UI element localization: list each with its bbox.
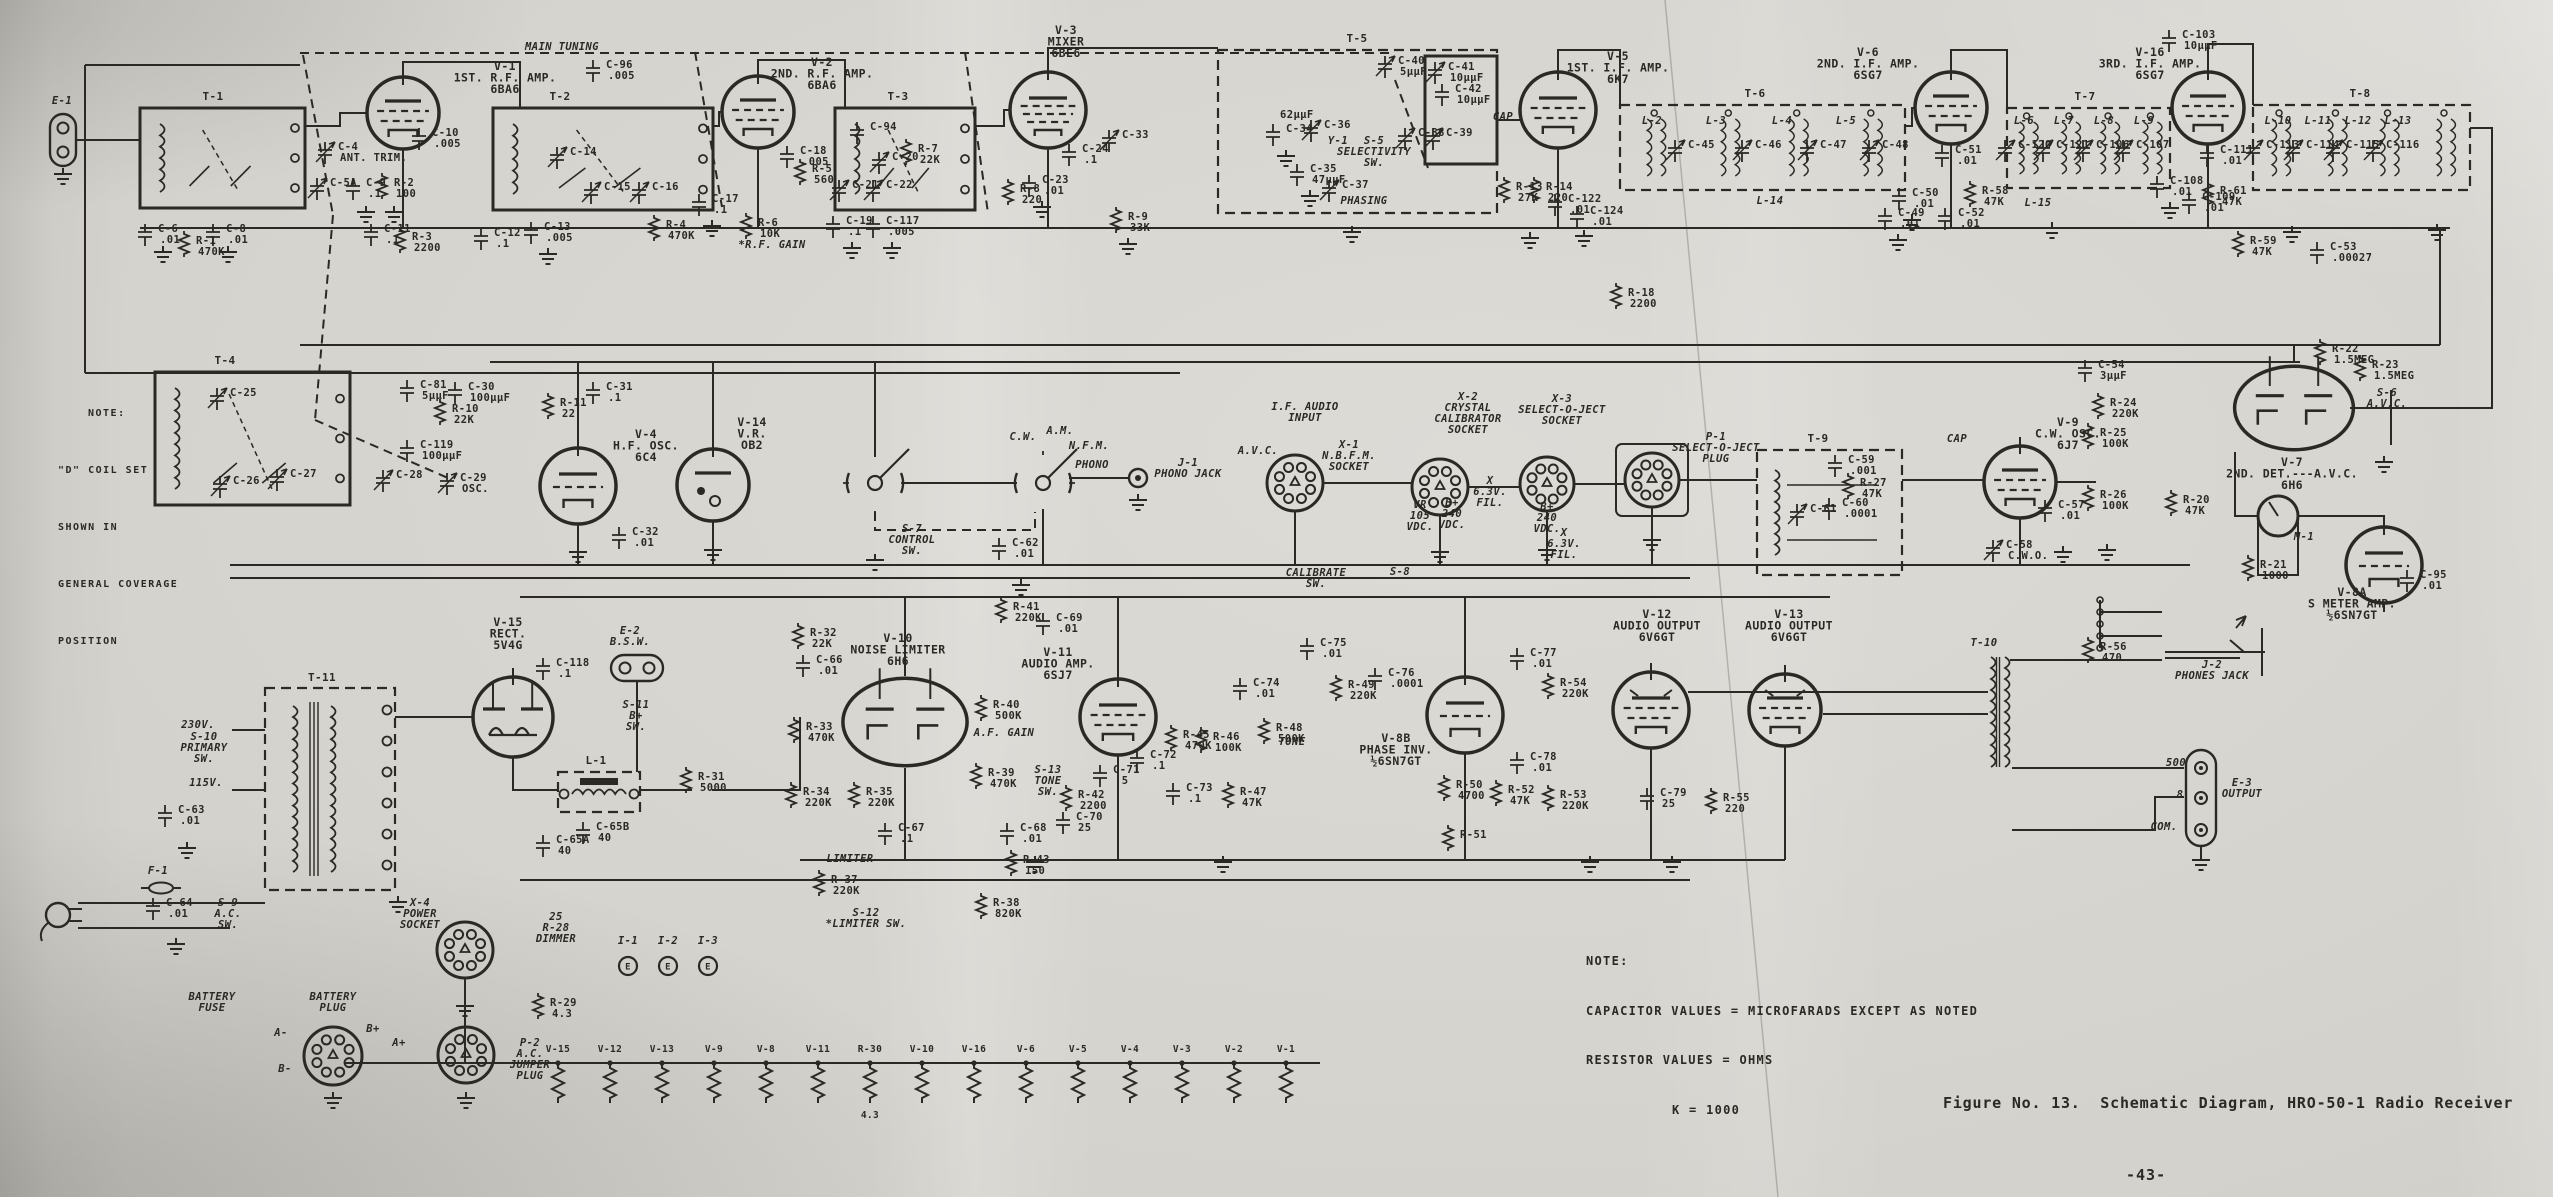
svg-text:T-3: T-3: [887, 90, 908, 103]
svg-text:A.V.C.: A.V.C.: [1237, 445, 1278, 457]
svg-text:V-10: V-10: [910, 1044, 934, 1055]
svg-text:.01: .01: [228, 234, 248, 246]
svg-text:.1: .1: [714, 204, 727, 216]
svg-text:PHASING: PHASING: [1340, 195, 1387, 207]
svg-text:.01: .01: [1058, 623, 1078, 635]
svg-text:100K: 100K: [1215, 742, 1242, 754]
tube-V-11: V-11AUDIO AMP.6SJ7: [1021, 645, 1156, 764]
ground-symbols: [54, 150, 2446, 1108]
svg-text:220: 220: [1022, 194, 1042, 206]
svg-text:47K: 47K: [1984, 196, 2004, 208]
socket-BATTERY-PLUG: [304, 1027, 362, 1085]
svg-text:L-1: L-1: [585, 754, 606, 767]
part-C71: C-71.5: [1093, 764, 1140, 787]
part-C114: C-114: [2284, 139, 2340, 162]
part-C72: C-72.1: [1130, 749, 1177, 772]
svg-text:.1: .1: [1152, 760, 1165, 772]
svg-text:A.V.C.: A.V.C.: [2366, 398, 2407, 410]
svg-text:I-2: I-2: [658, 935, 678, 947]
svg-text:25: 25: [1662, 798, 1675, 810]
part-R35: R-35220K: [849, 782, 895, 809]
svg-text:SOCKET: SOCKET: [1329, 461, 1370, 473]
svg-text:A.M.: A.M.: [1046, 425, 1074, 437]
svg-text:FIL.: FIL.: [1477, 497, 1504, 509]
ac-plug-acplug: [41, 903, 82, 941]
svg-text:TONE: TONE: [1279, 736, 1306, 748]
svg-text:S-8: S-8: [1390, 566, 1410, 578]
svg-text:47K: 47K: [1510, 795, 1530, 807]
svg-text:C-120: C-120: [2018, 139, 2052, 151]
svg-text:L-5: L-5: [1836, 115, 1856, 127]
svg-text:6V6GT: 6V6GT: [1771, 630, 1808, 644]
part-C79: C-7925: [1640, 787, 1687, 810]
part-R41: R-41220K: [996, 597, 1042, 624]
svg-text:10μμF: 10μμF: [1457, 94, 1491, 106]
part-C11: C-11.1: [364, 223, 411, 246]
part-R56: R-56470: [2083, 637, 2127, 664]
svg-text:6V6GT: 6V6GT: [1639, 630, 1676, 644]
svg-text:SW.: SW.: [1364, 157, 1384, 169]
svg-text:V-6: V-6: [1017, 1044, 1035, 1055]
part-R40: R-40500K: [976, 695, 1022, 722]
part-R18: R-182200: [1611, 283, 1657, 310]
part-C53: C-53.00027: [2310, 241, 2372, 264]
svg-text:470K: 470K: [990, 778, 1017, 790]
svg-text:C-45: C-45: [1688, 139, 1715, 151]
svg-text:I-1: I-1: [618, 935, 638, 947]
t-10-coilv: [1991, 657, 2010, 767]
part-C34: C-34: [1266, 123, 1313, 146]
svg-text:C-48: C-48: [1882, 139, 1909, 151]
svg-text:C-25: C-25: [230, 387, 257, 399]
svg-text:6H6: 6H6: [2281, 478, 2303, 492]
part-R59: R-5947K: [2233, 231, 2277, 258]
part-C15: C-15: [582, 181, 631, 204]
svg-text:C-94: C-94: [870, 121, 897, 133]
part-C66: C-66.01: [796, 654, 843, 677]
part-C29: C-29OSC.: [438, 472, 489, 495]
tube-V-2: V-22ND. R.F. AMP.6BA6: [722, 55, 873, 157]
svg-text:L-11: L-11: [2305, 115, 2332, 127]
svg-text:.005: .005: [802, 156, 829, 168]
svg-text:22: 22: [562, 408, 575, 420]
svg-text:230V.: 230V.: [180, 719, 215, 731]
svg-text:FIL.: FIL.: [1551, 549, 1578, 561]
svg-text:.01: .01: [1014, 548, 1034, 560]
svg-text:6BE6: 6BE6: [1051, 46, 1080, 60]
svg-text:6H6: 6H6: [887, 654, 909, 668]
svg-text:6J7: 6J7: [2057, 438, 2079, 452]
svg-text:6BA6: 6BA6: [807, 78, 836, 92]
svg-text:2200: 2200: [1630, 298, 1657, 310]
svg-text:OB2: OB2: [741, 438, 763, 452]
svg-text:.01: .01: [634, 537, 654, 549]
part-R20: R-2047K: [2166, 490, 2210, 517]
part-C25: C-25: [208, 387, 257, 410]
part-C32: C-32.01: [612, 526, 659, 549]
tube-V-8B: V-8BPHASE INV.½6SN7GT: [1359, 668, 1503, 768]
part-C17: C-17.1: [692, 193, 739, 216]
svg-text:SW.: SW.: [626, 721, 646, 733]
part-R39: R-39470K: [971, 763, 1017, 790]
part-C75: C-75.01: [1300, 637, 1347, 660]
part-R9: R-933K: [1111, 207, 1150, 234]
part-C12: C-12.1: [474, 227, 521, 250]
part-C42: C-4210μμF: [1435, 83, 1491, 106]
svg-text:470K: 470K: [198, 246, 225, 258]
tube-V-4: V-4H.F. OSC.6C4: [540, 427, 679, 533]
svg-text:220K: 220K: [1562, 800, 1589, 812]
transformer-T-1: T-1: [140, 90, 305, 208]
part-C70: C-7025: [1056, 811, 1103, 834]
svg-text:100K: 100K: [2102, 438, 2129, 450]
part-C6: C-6.01: [138, 223, 180, 246]
svg-text:470K: 470K: [668, 230, 695, 242]
schematic-canvas: T-1T-2T-3T-4T-5T-6T-7T-8T-9T-11L-1V-11ST…: [0, 0, 2553, 1197]
tube-V-13: V-13AUDIO OUTPUT6V6GT: [1745, 607, 1833, 755]
tube-V-7: V-72ND. DET.---A.V.C.6H6: [2226, 356, 2358, 492]
svg-text:C-107: C-107: [2136, 139, 2170, 151]
svg-text:T-11: T-11: [308, 671, 336, 684]
svg-text:L-7: L-7: [2054, 115, 2074, 127]
part-R10: R-1022K: [435, 399, 479, 426]
svg-text:47K: 47K: [2185, 505, 2205, 517]
tube-V-16: V-163RD. I.F. AMP.6SG7: [2099, 45, 2244, 153]
svg-text:4700: 4700: [1458, 790, 1485, 802]
svg-text:VDC.: VDC.: [1407, 521, 1434, 533]
svg-text:PLUG: PLUG: [1703, 453, 1730, 465]
part-C62: C-62.01: [992, 537, 1039, 560]
svg-text:T-5: T-5: [1346, 32, 1367, 45]
part-C103: C-10310μμF: [2162, 29, 2218, 52]
svg-text:5V4G: 5V4G: [493, 638, 522, 652]
part-C95: C-95.01: [2400, 569, 2447, 592]
socket-X-4: [437, 922, 493, 978]
part-C64: C-64.01: [146, 897, 193, 920]
svg-text:.0001: .0001: [1390, 678, 1424, 690]
svg-text:C-15: C-15: [604, 181, 631, 193]
svg-text:V-15: V-15: [546, 1044, 570, 1055]
part-C49: C-49.01: [1878, 207, 1925, 230]
coil-note-line: POSITION: [58, 632, 178, 651]
svg-text:.01: .01: [168, 908, 188, 920]
svg-text:V-1: V-1: [1277, 1044, 1295, 1055]
part-C63: C-63.01: [158, 804, 205, 827]
svg-text:N.F.M.: N.F.M.: [1068, 440, 1109, 452]
svg-text:100K: 100K: [2102, 500, 2129, 512]
m-1-meter: [2258, 496, 2298, 536]
part-R53: R-53220K: [1543, 785, 1589, 812]
svg-text:L-9: L-9: [2134, 115, 2154, 127]
svg-text:6SJ7: 6SJ7: [1043, 668, 1072, 682]
coil-note-line: "D" COIL SET: [58, 461, 178, 480]
tube-V-14: V-14V.R.OB2: [677, 415, 767, 530]
part-C61: C-61: [1788, 503, 1837, 526]
svg-text:47K: 47K: [2252, 246, 2272, 258]
svg-text:220: 220: [1725, 803, 1745, 815]
svg-text:.005: .005: [546, 232, 573, 244]
part-R31: R-315000: [681, 767, 727, 794]
svg-text:L-8: L-8: [2094, 115, 2114, 127]
svg-text:CAP: CAP: [1947, 433, 1967, 445]
svg-text:5μμF: 5μμF: [422, 390, 449, 402]
svg-text:.005: .005: [434, 138, 461, 150]
svg-text:10μμF: 10μμF: [2184, 40, 2218, 52]
svg-text:CAP: CAP: [1493, 111, 1513, 123]
part-C20: C-20: [870, 151, 919, 174]
part-C58: C-58C.W.O.: [1984, 539, 2048, 562]
svg-text:T-7: T-7: [2074, 90, 2095, 103]
heater-chain: V-15V-12V-13V-9V-8V-11R-304.3V-10V-16V-6…: [546, 1044, 1295, 1121]
svg-text:M-1: M-1: [2293, 531, 2314, 543]
values-note: NOTE: CAPACITOR VALUES = MICROFARADS EXC…: [1586, 920, 1978, 1151]
svg-text:VDC.: VDC.: [1439, 519, 1466, 531]
svg-text:T-6: T-6: [1744, 87, 1765, 100]
part-C24: C-24.1: [1062, 143, 1109, 166]
svg-text:PLUG: PLUG: [517, 1070, 544, 1082]
part-C41: C-4110μμF: [1426, 61, 1484, 84]
mode-sw-rot: [1011, 449, 1077, 515]
svg-text:V-4: V-4: [1121, 1044, 1139, 1055]
coil-note: NOTE: "D" COIL SET SHOWN IN GENERAL COVE…: [58, 366, 178, 689]
part-R29: R-294.3: [533, 993, 577, 1020]
part-C31: C-31.1: [586, 381, 633, 404]
svg-text:40: 40: [558, 845, 571, 857]
part-C116: C-116: [2364, 139, 2420, 162]
svg-text:.00027: .00027: [2332, 252, 2372, 264]
part-C74: C-74.01: [1233, 677, 1280, 700]
svg-text:C-116: C-116: [2386, 139, 2420, 151]
tube-V-12: V-12AUDIO OUTPUT6V6GT: [1613, 607, 1701, 757]
svg-text:C-46: C-46: [1755, 139, 1782, 151]
svg-text:*R.F. GAIN: *R.F. GAIN: [738, 239, 805, 251]
svg-text:OSC.: OSC.: [462, 483, 489, 495]
part-C108: C-108.01: [2150, 175, 2204, 198]
part-C13: C-13.005: [524, 221, 573, 244]
svg-text:.005: .005: [608, 70, 635, 82]
svg-text:F-1: F-1: [148, 865, 168, 877]
svg-text:C-20: C-20: [892, 151, 919, 163]
svg-text:4.3: 4.3: [861, 1110, 879, 1121]
svg-text:V-16: V-16: [962, 1044, 986, 1055]
transformer-T-11: T-11: [265, 671, 395, 890]
svg-text:C-22: C-22: [886, 179, 913, 191]
svg-text:.01: .01: [1957, 155, 1977, 167]
svg-text:.005: .005: [888, 226, 915, 238]
part-R24: R-24220K: [2093, 393, 2139, 420]
svg-text:220K: 220K: [868, 797, 895, 809]
svg-text:220K: 220K: [1015, 612, 1042, 624]
f-1-fuse: [141, 883, 181, 894]
svg-text:V-8: V-8: [757, 1044, 775, 1055]
part-C118: C-118.1: [536, 657, 590, 680]
svg-text:LIMITER: LIMITER: [826, 853, 873, 865]
svg-text:OUTPUT: OUTPUT: [2222, 788, 2263, 800]
svg-text:.01: .01: [1255, 688, 1275, 700]
svg-text:FUSE: FUSE: [199, 1002, 226, 1014]
part-C10: C-10.005: [412, 127, 461, 150]
svg-text:3μμF: 3μμF: [2100, 370, 2127, 382]
part-R50: R-504700: [1439, 775, 1485, 802]
svg-text:SW.: SW.: [194, 753, 214, 765]
part-C40: C-405μμF: [1376, 55, 1427, 78]
svg-text:62μμF: 62μμF: [1280, 109, 1314, 121]
part-R23: R-231.5MEG: [2355, 355, 2414, 382]
svg-text:1000: 1000: [2262, 570, 2289, 582]
svg-text:PHONO: PHONO: [1075, 459, 1109, 471]
part-C73: C-73.1: [1166, 782, 1213, 805]
part-C65A: C-65A40: [536, 834, 590, 857]
svg-text:V-12: V-12: [598, 1044, 622, 1055]
part-R43: R-43150: [1006, 850, 1050, 877]
svg-text:SW.: SW.: [1038, 786, 1058, 798]
svg-text:.1: .1: [496, 238, 509, 250]
part-R6: R-610K: [741, 213, 780, 240]
svg-text:E: E: [625, 963, 631, 973]
svg-text:½6SN7GT: ½6SN7GT: [2326, 608, 2377, 622]
svg-text:B-: B-: [277, 1063, 291, 1075]
svg-text:100μμF: 100μμF: [422, 450, 462, 462]
part-C18: C-18.005: [780, 145, 829, 168]
svg-text:C.W.: C.W.: [1010, 431, 1037, 443]
svg-text:220K: 220K: [805, 797, 832, 809]
svg-text:T-9: T-9: [1807, 432, 1828, 445]
svg-text:500K: 500K: [995, 710, 1022, 722]
svg-text:PHONO JACK: PHONO JACK: [1154, 468, 1222, 480]
part-R1: R-1470K: [179, 231, 225, 258]
svg-text:C-26: C-26: [233, 475, 260, 487]
part-C54: C-543μμF: [2078, 359, 2127, 382]
values-note-line: NOTE:: [1586, 953, 1978, 970]
svg-text:T-8: T-8: [2349, 87, 2370, 100]
svg-text:6K7: 6K7: [1607, 72, 1629, 86]
svg-text:5000: 5000: [700, 782, 727, 794]
socket-X-1: [1267, 455, 1323, 511]
svg-text:.01: .01: [1044, 185, 1064, 197]
part-C14: C-14: [548, 146, 597, 169]
svg-text:L-12: L-12: [2345, 115, 2372, 127]
svg-text:25: 25: [1078, 822, 1091, 834]
svg-text:.01: .01: [1592, 216, 1612, 228]
svg-text:.01: .01: [1532, 762, 1552, 774]
svg-text:E: E: [705, 963, 711, 973]
part-R22: R-221.5MEG: [2315, 339, 2374, 366]
part-R49: R-49220K: [1331, 675, 1377, 702]
svg-text:V-3: V-3: [1173, 1044, 1191, 1055]
svg-text:47K: 47K: [2222, 196, 2242, 208]
part-R37: R-37220K: [814, 870, 860, 897]
svg-text:.1: .1: [558, 668, 571, 680]
svg-text:C-47: C-47: [1820, 139, 1847, 151]
svg-text:L-6: L-6: [2014, 115, 2034, 127]
svg-text:C-14: C-14: [570, 146, 597, 158]
svg-text:L-2: L-2: [1642, 115, 1662, 127]
svg-text:*LIMITER SW.: *LIMITER SW.: [826, 918, 907, 930]
part-R61: R-6147K: [2203, 181, 2247, 208]
svg-text:22K: 22K: [920, 154, 940, 166]
svg-text:6SG7: 6SG7: [1853, 68, 1882, 82]
svg-text:47K: 47K: [1242, 797, 1262, 809]
svg-text:150: 150: [1025, 865, 1045, 877]
svg-text:.01: .01: [1022, 833, 1042, 845]
svg-text:6SG7: 6SG7: [2135, 68, 2164, 82]
svg-text:C-39: C-39: [1446, 127, 1473, 139]
svg-text:22K: 22K: [454, 414, 474, 426]
part-C117: C-117.005: [866, 215, 920, 238]
part-R34: R-34220K: [786, 782, 832, 809]
part-R3: R-32200: [395, 227, 441, 254]
svg-text:.01: .01: [2060, 510, 2080, 522]
tube-V-15: V-15RECT.5V4G: [473, 615, 553, 766]
svg-text:L-3: L-3: [1706, 115, 1726, 127]
svg-text:DIMMER: DIMMER: [535, 933, 576, 945]
svg-text:½6SN7GT: ½6SN7GT: [1370, 754, 1421, 768]
svg-text:C-36: C-36: [1324, 119, 1351, 131]
coil-note-line: GENERAL COVERAGE: [58, 575, 178, 594]
part-C57: C-57.01: [2038, 499, 2085, 522]
part-C76: C-76.0001: [1368, 667, 1424, 690]
svg-text:.01: .01: [2422, 580, 2442, 592]
svg-text:1.5MEG: 1.5MEG: [2374, 370, 2414, 382]
svg-text:T-4: T-4: [214, 354, 235, 367]
svg-text:COM.: COM.: [2151, 821, 2178, 833]
part-C28: C-28: [374, 469, 423, 492]
svg-text:22K: 22K: [812, 638, 832, 650]
svg-text:A.F. GAIN: A.F. GAIN: [973, 727, 1035, 739]
svg-text:SOCKET: SOCKET: [400, 919, 441, 931]
svg-text:Y-1: Y-1: [1328, 135, 1348, 147]
schematic-page: T-1T-2T-3T-4T-5T-6T-7T-8T-9T-11L-1V-11ST…: [0, 0, 2553, 1197]
e-3-term3v: [2186, 750, 2216, 846]
svg-text:.01: .01: [818, 665, 838, 677]
part-C45: C-45: [1666, 139, 1715, 162]
svg-text:SW.: SW.: [218, 919, 238, 931]
svg-text:V-2: V-2: [1225, 1044, 1243, 1055]
part-R42: R-422200: [1061, 785, 1107, 812]
svg-text:B.S.W.: B.S.W.: [609, 636, 650, 648]
svg-text:.1: .1: [1084, 154, 1097, 166]
svg-text:I-3: I-3: [698, 935, 718, 947]
svg-text:T-2: T-2: [549, 90, 570, 103]
svg-text:V-13: V-13: [650, 1044, 674, 1055]
part-R27: R-2747K: [1843, 473, 1887, 500]
values-note-line: RESISTOR VALUES = OHMS: [1586, 1052, 1978, 1069]
part-R47: R-4747K: [1223, 782, 1267, 809]
part-R14: R-14220: [1529, 177, 1573, 204]
coil-note-line: NOTE:: [58, 404, 178, 423]
svg-text:100: 100: [396, 188, 416, 200]
part-R25: R-25100K: [2083, 423, 2129, 450]
i-1-lamp: E: [619, 957, 637, 975]
tube-V-6: V-62ND. I.F. AMP.6SG7: [1817, 45, 1987, 153]
svg-text:.01: .01: [1532, 658, 1552, 670]
part-R26: R-26100K: [2083, 485, 2129, 512]
svg-text:6BA6: 6BA6: [490, 82, 519, 96]
svg-text:T-10: T-10: [1971, 637, 1998, 649]
svg-text:4.3: 4.3: [552, 1008, 572, 1020]
svg-text:R-51: R-51: [1460, 829, 1487, 841]
part-C121: C-121: [2034, 139, 2090, 162]
part-C96: C-96.005: [586, 59, 635, 82]
part-C5A: C-5A: [308, 177, 357, 200]
svg-text:MAIN TUNING: MAIN TUNING: [524, 41, 599, 53]
figure-caption: Figure No. 13. Schematic Diagram, HRO-50…: [1943, 1094, 2513, 1112]
transformer-T-2: T-2: [493, 90, 713, 210]
svg-text:A-: A-: [273, 1027, 287, 1039]
part-C21: C-21: [830, 179, 879, 202]
svg-text:V-11: V-11: [806, 1044, 830, 1055]
svg-text:.1: .1: [900, 833, 913, 845]
